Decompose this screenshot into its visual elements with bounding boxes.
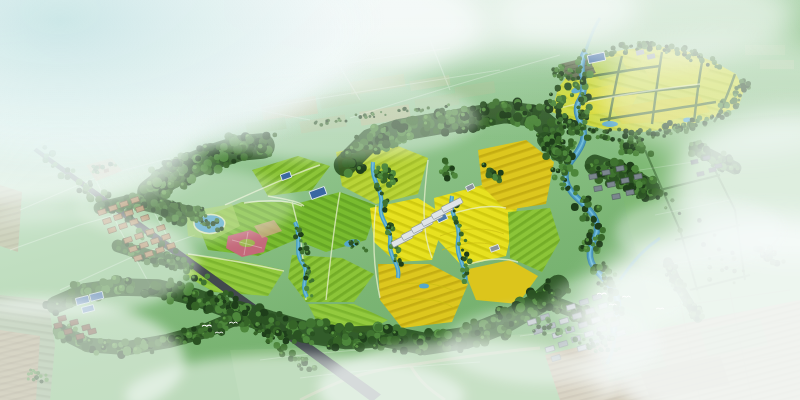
topleft-haze bbox=[0, 0, 500, 260]
landscape-canvas bbox=[0, 0, 800, 400]
mist-wisp bbox=[550, 272, 690, 328]
mist-wisp bbox=[615, 196, 785, 268]
small-pond bbox=[419, 284, 429, 289]
aerial-masterplan-rendering bbox=[0, 0, 800, 400]
